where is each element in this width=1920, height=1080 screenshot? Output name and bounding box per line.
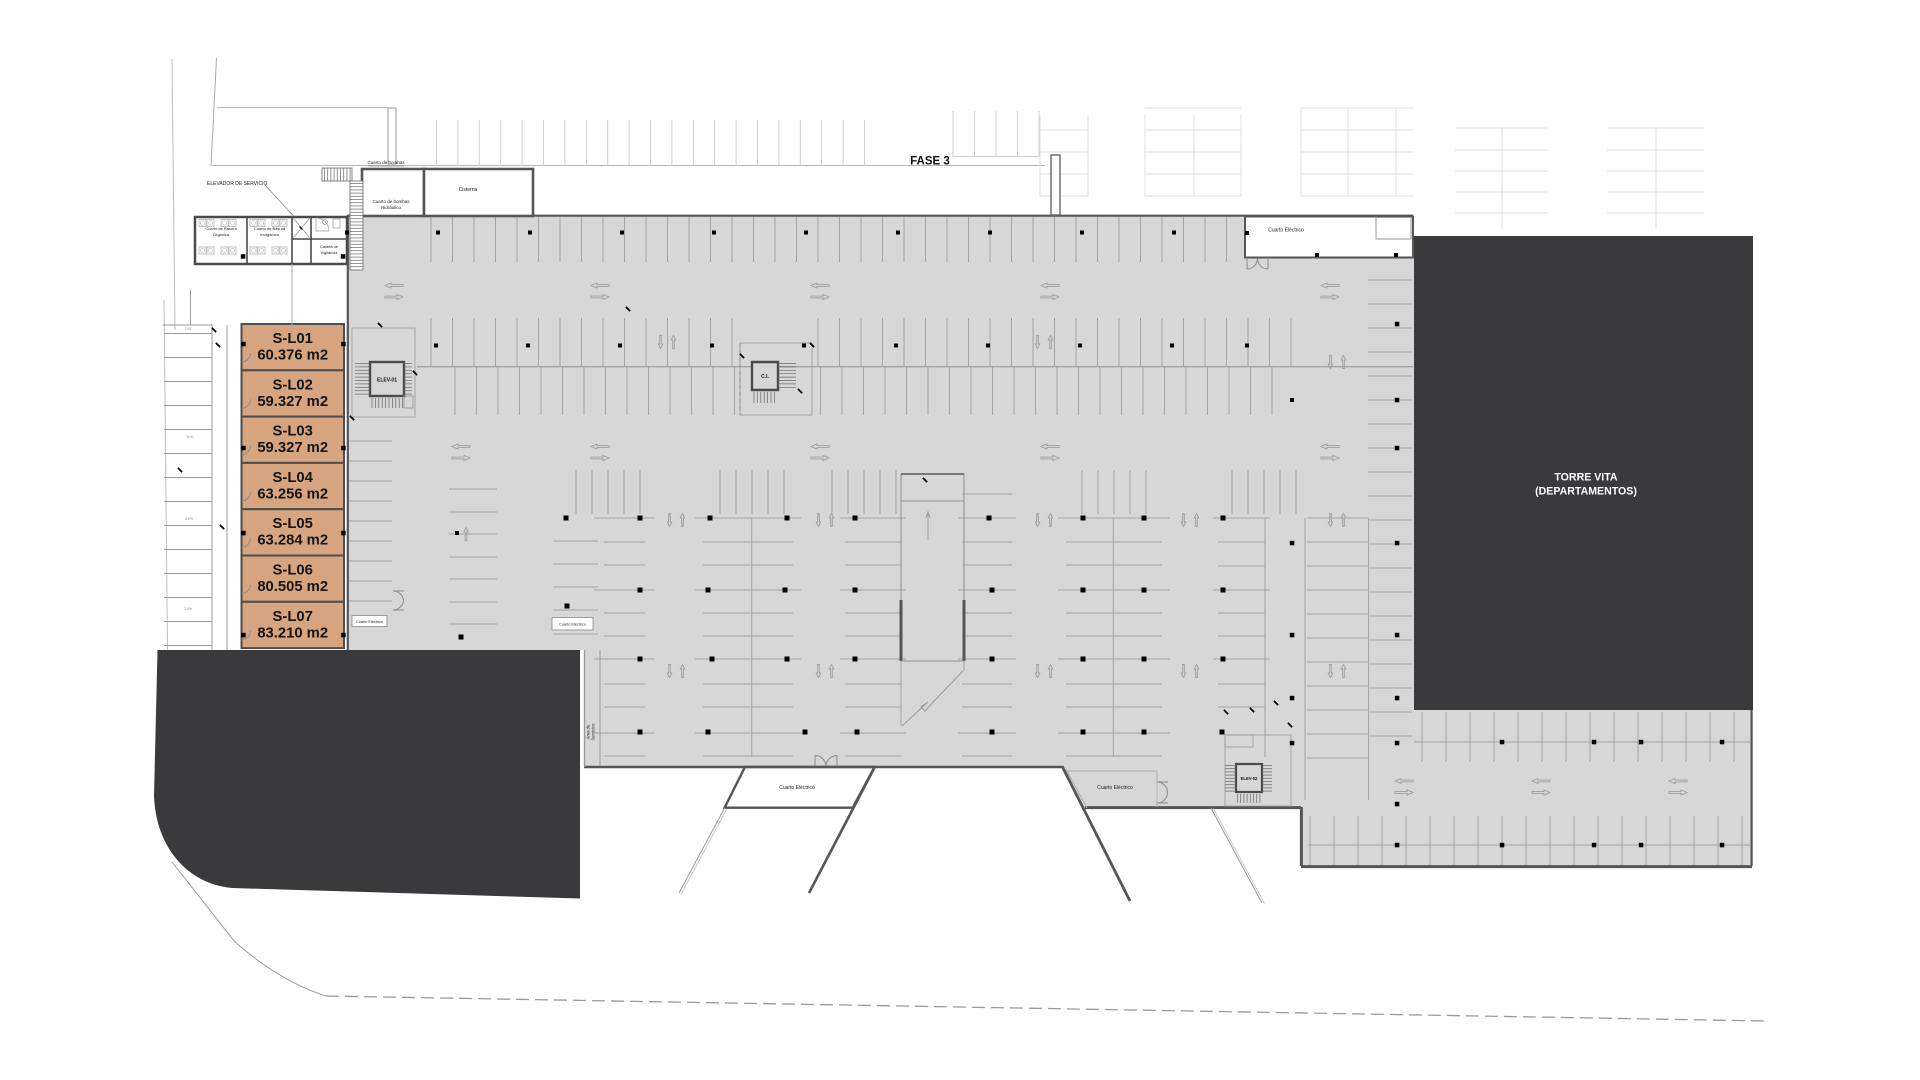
svg-text:Cuarto Eléctrico: Cuarto Eléctrico [1097,785,1133,791]
svg-text:63.284 m2: 63.284 m2 [257,533,328,549]
svg-text:Caseta de: Caseta de [320,244,339,249]
svg-text:Cuarto Eléctrico: Cuarto Eléctrico [1268,228,1304,234]
svg-text:Inorgánica: Inorgánica [260,232,279,237]
svg-text:2.05: 2.05 [185,327,191,331]
svg-text:ELEV-01: ELEV-01 [377,378,397,384]
svg-text:TORRE VITA: TORRE VITA [1554,472,1618,484]
svg-text:Cuarto de Basura: Cuarto de Basura [205,226,237,231]
svg-text:5.00: 5.00 [187,435,194,439]
svg-text:Cuarto de bombas: Cuarto de bombas [367,160,405,165]
svg-text:83.210 m2: 83.210 m2 [257,625,328,641]
svg-text:3.0%: 3.0% [184,607,192,611]
svg-text:59.327 m2: 59.327 m2 [257,440,328,456]
svg-text:Cuarto de bombas: Cuarto de bombas [372,199,410,204]
svg-text:63.256 m2: 63.256 m2 [257,486,328,502]
svg-text:S-L04: S-L04 [273,470,314,486]
svg-text:Cuarto de Basura: Cuarto de Basura [254,226,286,231]
svg-text:S-L06: S-L06 [273,563,313,579]
svg-text:ELEV-02: ELEV-02 [1241,776,1258,781]
svg-text:Cisterna: Cisterna [459,187,478,193]
svg-text:Servicios: Servicios [591,724,596,741]
svg-text:80.505 m2: 80.505 m2 [257,579,328,595]
svg-text:Cuarto Eléctrico: Cuarto Eléctrico [559,623,586,627]
svg-text:S-L01: S-L01 [273,331,313,347]
svg-text:ELEVADOR DE SERVICIO: ELEVADOR DE SERVICIO [207,181,267,187]
svg-text:S-L05: S-L05 [273,516,313,532]
svg-text:Cuarto Eléctrico: Cuarto Eléctrico [356,620,383,624]
svg-text:S-L03: S-L03 [273,424,313,440]
svg-text:4.0%: 4.0% [185,517,193,521]
svg-text:59.327 m2: 59.327 m2 [257,394,328,410]
svg-text:Hidráulico: Hidráulico [381,205,402,210]
svg-text:60.376 m2: 60.376 m2 [257,348,328,364]
svg-text:C.I.: C.I. [761,374,769,380]
svg-text:FASE 3: FASE 3 [910,156,950,168]
svg-text:Orgánica: Orgánica [213,232,230,237]
svg-text:S-L02: S-L02 [273,377,313,393]
svg-text:Cuarto Eléctrico: Cuarto Eléctrico [779,785,815,791]
svg-text:Vigilancia: Vigilancia [320,250,338,255]
svg-text:(DEPARTAMENTOS): (DEPARTAMENTOS) [1535,486,1637,498]
svg-text:S-L07: S-L07 [273,609,313,625]
